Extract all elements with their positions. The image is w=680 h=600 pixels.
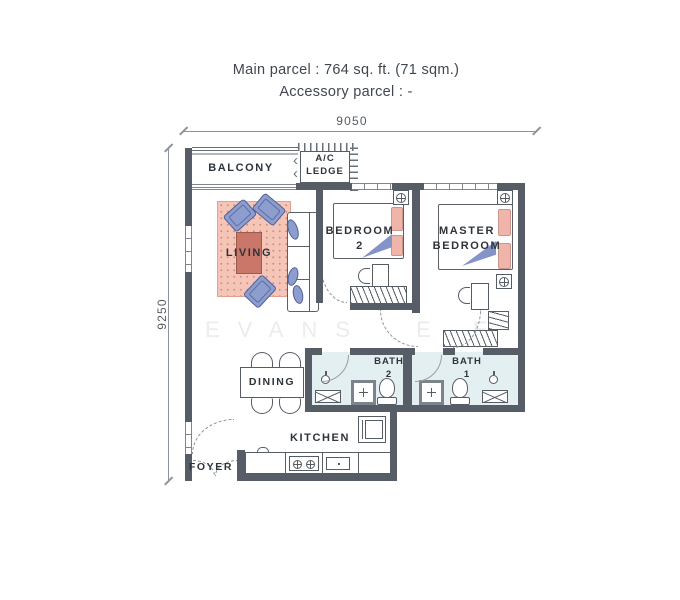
sofa-seam bbox=[288, 246, 309, 247]
fridge-icon bbox=[358, 416, 386, 443]
fridge-line bbox=[362, 420, 363, 439]
living-label: LIVING bbox=[209, 246, 289, 260]
accessory-parcel-text: Accessory parcel : - bbox=[146, 82, 546, 104]
shower-icon bbox=[419, 380, 444, 405]
plan-title: Main parcel : 764 sq. ft. (71 sqm.) Acce… bbox=[146, 60, 546, 104]
shower-icon bbox=[351, 380, 376, 405]
dining-label: DINING bbox=[240, 376, 304, 390]
wall-segment bbox=[412, 190, 420, 313]
sofa-backrest-line bbox=[309, 213, 310, 311]
floor-plan-page: Main parcel : 764 sq. ft. (71 sqm.) Acce… bbox=[0, 0, 680, 600]
counter-divider bbox=[285, 453, 286, 473]
wall-segment bbox=[390, 412, 397, 481]
bath1-label: BATH 1 bbox=[440, 356, 494, 382]
master-bedroom-label: MASTER BEDROOM bbox=[428, 224, 506, 254]
ac-ledge-label: A/C LEDGE bbox=[300, 153, 350, 179]
ac-ledge-hatch-top bbox=[298, 143, 358, 151]
balcony-label: BALCONY bbox=[198, 161, 284, 175]
wall-segment bbox=[443, 348, 455, 355]
kitchen-counter bbox=[245, 452, 391, 474]
counter-divider bbox=[358, 453, 359, 473]
bedroom2-label: BEDROOM 2 bbox=[322, 224, 398, 254]
stove-icon bbox=[289, 456, 319, 471]
window bbox=[185, 422, 192, 454]
main-parcel-text: Main parcel : 764 sq. ft. (71 sqm.) bbox=[146, 60, 546, 82]
wall-segment bbox=[237, 450, 245, 476]
ac-fan-icon bbox=[500, 193, 510, 203]
wall-segment bbox=[237, 474, 397, 481]
fridge-door bbox=[365, 420, 383, 439]
sink-drain bbox=[338, 463, 340, 465]
dressing-table bbox=[372, 264, 389, 288]
wall-segment bbox=[305, 405, 525, 412]
ac-fan-icon bbox=[499, 277, 509, 287]
toilet-tank bbox=[377, 397, 397, 405]
vanity-counter bbox=[315, 390, 341, 403]
window bbox=[352, 183, 392, 190]
dressing-table bbox=[471, 283, 489, 310]
ac-unit-icon bbox=[496, 274, 512, 289]
ac-fan-icon bbox=[396, 193, 406, 203]
dining-chair bbox=[279, 352, 301, 368]
ac-unit-icon bbox=[497, 190, 513, 205]
counter-divider bbox=[322, 453, 323, 473]
dining-chair bbox=[279, 398, 301, 414]
door-arc bbox=[320, 263, 347, 303]
window bbox=[424, 183, 497, 190]
dimension-width-label: 9050 bbox=[322, 114, 382, 128]
wall-segment bbox=[483, 348, 525, 355]
counter-fixture bbox=[257, 447, 269, 453]
dining-chair bbox=[251, 398, 273, 414]
wall-segment bbox=[350, 303, 412, 310]
window bbox=[185, 226, 192, 272]
foyer-label: FOYER bbox=[188, 461, 234, 475]
stove-burner-icon bbox=[306, 460, 315, 469]
balcony-railing bbox=[192, 147, 298, 156]
chevron-icon: ‹ bbox=[293, 166, 298, 181]
dressing-chair bbox=[458, 287, 470, 304]
vanity-counter bbox=[482, 390, 508, 403]
wall-segment bbox=[518, 183, 525, 412]
stove-burner-icon bbox=[293, 460, 302, 469]
wardrobe bbox=[488, 311, 509, 330]
wall-segment bbox=[305, 348, 312, 412]
dressing-chair bbox=[358, 268, 370, 284]
door-arc bbox=[192, 419, 234, 454]
dining-chair bbox=[251, 352, 273, 368]
sliding-door bbox=[192, 184, 296, 190]
kitchen-sink-icon bbox=[326, 457, 350, 470]
kitchen-label: KITCHEN bbox=[285, 431, 355, 445]
dimension-height-label: 9250 bbox=[155, 292, 169, 336]
bath2-label: BATH 2 bbox=[362, 356, 416, 382]
ac-unit-icon bbox=[393, 190, 409, 205]
toilet-tank bbox=[450, 397, 470, 405]
dimension-line-top bbox=[183, 131, 537, 132]
